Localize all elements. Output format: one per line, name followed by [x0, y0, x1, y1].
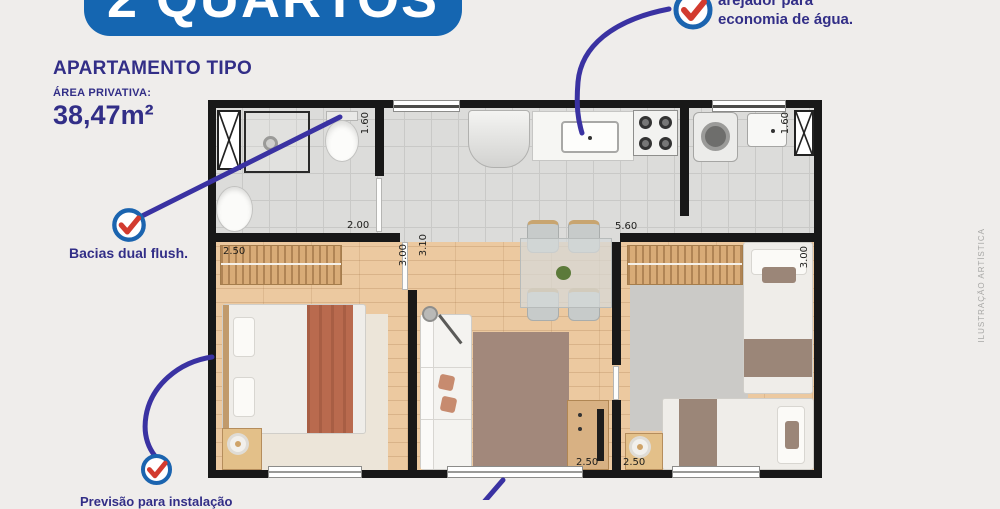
water-saver-callout: arejador para economia de água. — [718, 0, 853, 29]
dimension-label: 3.00 — [799, 246, 810, 268]
check-icon — [139, 452, 174, 487]
kitchen-counter — [532, 111, 634, 161]
dimension-label: 3.10 — [418, 234, 429, 256]
dimension-label: 1.60 — [360, 112, 371, 134]
bedroom1-nightstand — [222, 428, 262, 470]
private-area-value: 38,47m² — [53, 100, 252, 131]
bedroom1-window — [268, 466, 362, 478]
fridge — [468, 110, 530, 168]
living-room-window — [447, 466, 583, 478]
wall — [612, 242, 621, 365]
sofa — [420, 314, 472, 470]
faucet — [588, 136, 592, 140]
bedroom2-wardrobe — [627, 245, 743, 285]
floor-plan: 1.60 2.00 2.50 3.00 3.10 5.60 1.60 3.00 … — [208, 100, 822, 478]
banner-title: 2 QUARTOS — [107, 0, 439, 30]
laundry-window — [712, 100, 786, 112]
artistic-illustration-watermark: ILUSTRAÇÃO ARTÍSTICA — [977, 228, 986, 343]
shaft-box-icon — [794, 110, 814, 156]
wall — [375, 108, 384, 176]
wall — [408, 290, 417, 470]
toilet — [325, 120, 359, 162]
table-plant — [556, 266, 571, 280]
wall — [216, 233, 400, 242]
dual-flush-callout: Bacias dual flush. — [69, 245, 188, 261]
living-room-rug — [473, 332, 569, 470]
shower-box — [244, 111, 310, 173]
stove — [633, 110, 678, 156]
bathroom-sink — [216, 186, 253, 232]
title-banner: 2 QUARTOS — [84, 0, 462, 36]
page: { "colors": { "brand_blue": "#1566b1", "… — [0, 0, 1000, 500]
wall — [680, 108, 689, 216]
water-saver-line2: economia de água. — [718, 10, 853, 29]
private-area-label: ÁREA PRIVATIVA: — [53, 87, 252, 99]
shower-drain — [263, 136, 278, 151]
bathroom-door — [376, 178, 382, 232]
check-icon — [671, 0, 715, 32]
dimension-label: 2.50 — [576, 457, 598, 468]
check-icon — [110, 206, 148, 244]
apartment-type-title: APARTAMENTO TIPO — [53, 58, 252, 80]
floor-lamp-icon — [422, 306, 438, 322]
bedroom2-window — [672, 466, 760, 478]
dimension-label: 2.50 — [223, 246, 245, 257]
washing-machine — [693, 112, 738, 162]
water-saver-line1: arejador para — [718, 0, 853, 10]
single-bed-horizontal — [662, 398, 814, 470]
dimension-label: 2.50 — [623, 457, 645, 468]
dimension-label: 5.60 — [615, 221, 637, 232]
apartment-header: APARTAMENTO TIPO ÁREA PRIVATIVA: 38,47m² — [53, 58, 252, 131]
bottom-callout: Previsão para instalação — [80, 494, 232, 509]
wall — [620, 233, 814, 242]
bedroom2-door — [613, 366, 619, 400]
double-bed — [222, 304, 366, 434]
dimension-label: 3.00 — [398, 244, 409, 266]
kitchen-window — [393, 100, 460, 112]
wall — [612, 400, 621, 470]
dimension-label: 2.00 — [347, 220, 369, 231]
dimension-label: 1.60 — [780, 112, 791, 134]
